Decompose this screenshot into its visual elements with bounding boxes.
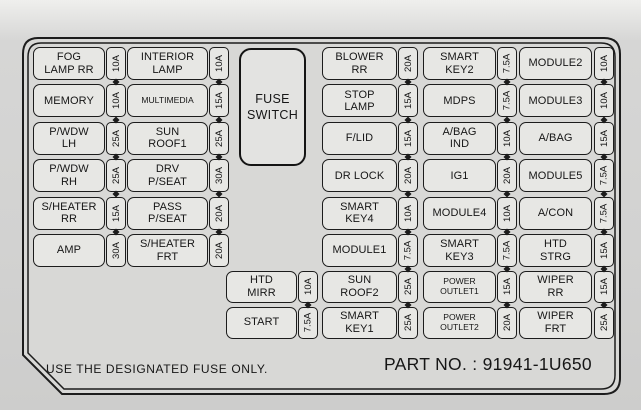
fuse-amp-sun-roof1: 25A [209,122,229,155]
amp-rating: 25A [403,278,414,295]
amp-rating: 15A [599,278,610,295]
amp-rating: 10A [111,55,122,72]
fuse-label: S/HEATER RR [42,201,97,226]
amp-rating: 25A [599,314,610,331]
fuse-amp-smart-key1: 25A [398,307,418,339]
fuse-amp-module2: 10A [594,47,614,80]
amp-rating: 7.5A [599,203,610,223]
fuse-dr-lock: DR LOCK [322,159,397,192]
fuse-module4: MODULE4 [423,197,496,230]
fuse-amp-drv-p-seat: 30A [209,159,229,192]
fuse-s-heater-frt: S/HEATER FRT [127,234,208,267]
fuse-label: SUN ROOF2 [340,274,378,299]
fuse-amp-memory: 10A [106,84,126,117]
fuse-label: STOP LAMP [344,89,374,114]
fuse-amp-power-outlet1: 15A [497,271,517,303]
fuse-label: DRV P/SEAT [148,163,187,188]
fuse-f-lid: F/LID [322,122,397,155]
fuse-label: PASS P/SEAT [148,201,187,226]
amp-rating: 10A [403,205,414,222]
part-number: PART NO. : 91941-1U650 [384,354,592,375]
fuse-amp-start: 7.5A [298,307,318,339]
fuse-label: MODULE5 [529,170,583,182]
fuse-label: POWER OUTLET2 [440,313,479,332]
fuse-multimedia: MULTIMEDIA [127,84,208,117]
amp-rating: 7.5A [502,54,513,74]
fuse-sun-roof2: SUN ROOF2 [322,271,397,303]
fuse-label: HTD STRG [540,238,571,263]
fuse-module5: MODULE5 [519,159,592,192]
amp-rating: 20A [403,55,414,72]
fuse-label: P/WDW LH [49,126,89,151]
fuse-label: BLOWER RR [335,51,383,76]
fuse-p-wdw-rh: P/WDW RH [33,159,105,192]
fuse-module3: MODULE3 [519,84,592,117]
fuse-fog-lamp-rr: FOG LAMP RR [33,47,105,80]
fuse-label: MEMORY [44,95,94,107]
fuse-mdps: MDPS [423,84,496,117]
fuse-label: F/LID [346,132,373,144]
fuse-amp-interior-lamp: 10A [209,47,229,80]
fuse-label: S/HEATER FRT [140,238,195,263]
fuse-amp-smart-key4: 10A [398,197,418,230]
fuse-sun-roof1: SUN ROOF1 [127,122,208,155]
fuse-label: WIPER FRT [537,310,574,335]
amp-rating: 7.5A [599,166,610,186]
fuse-amp-amp: 30A [106,234,126,267]
fuse-label: WIPER RR [537,274,574,299]
fuse-smart-key4: SMART KEY4 [322,197,397,230]
fuse-amp-smart-key2: 7.5A [497,47,517,80]
fuse-label: MODULE3 [529,95,583,107]
amp-rating: 15A [111,205,122,222]
fuse-amp-module4: 10A [497,197,517,230]
fuse-smart-key1: SMART KEY1 [322,307,397,339]
fuse-smart-key2: SMART KEY2 [423,47,496,80]
fuse-label: MODULE4 [433,207,487,219]
fuse-amp-f-lid: 15A [398,122,418,155]
amp-rating: 7.5A [502,91,513,111]
fuse-interior-lamp: INTERIOR LAMP [127,47,208,80]
fuse-label: SMART KEY1 [340,310,379,335]
fuse-amp-mdps: 7.5A [497,84,517,117]
fuse-box-diagram: FOG LAMP RR10AMEMORY10AP/WDW LH25AP/WDW … [0,0,641,410]
fuse-memory: MEMORY [33,84,105,117]
fuse-start: START [226,307,297,339]
fuse-amp-a-bag: 15A [594,122,614,155]
amp-rating: 20A [214,205,225,222]
fuse-amp-ig1: 20A [497,159,517,192]
fuse-stop-lamp: STOP LAMP [322,84,397,117]
fuse-htd-mirr: HTD MIRR [226,271,297,303]
fuse-amp-multimedia: 15A [209,84,229,117]
fuse-label: A/BAG [538,132,572,144]
fuse-amp-sun-roof2: 25A [398,271,418,303]
fuse-amp-dr-lock: 20A [398,159,418,192]
amp-rating: 15A [502,278,513,295]
fuse-smart-key3: SMART KEY3 [423,234,496,267]
fuse-a-bag: A/BAG [519,122,592,155]
fuse-switch-label: FUSE SWITCH [247,91,298,124]
fuse-amp-pass-p-seat: 20A [209,197,229,230]
fuse-power-outlet2: POWER OUTLET2 [423,307,496,339]
amp-rating: 10A [214,55,225,72]
fuse-amp-p-wdw-lh: 25A [106,122,126,155]
amp-rating: 15A [599,130,610,147]
amp-rating: 15A [403,92,414,109]
fuse-amp-s-heater-rr: 15A [106,197,126,230]
fuse-label: MODULE1 [333,244,387,256]
fuse-label: FOG LAMP RR [44,51,93,76]
fuse-htd-strg: HTD STRG [519,234,592,267]
fuse-label: SUN ROOF1 [148,126,186,151]
fuse-label: SMART KEY3 [440,238,479,263]
fuse-a-bag-ind: A/BAG IND [423,122,496,155]
fuse-amp-blower-rr: 20A [398,47,418,80]
fuse-amp: AMP [33,234,105,267]
fuse-label: HTD MIRR [247,274,276,299]
fuse-amp-fog-lamp-rr: 10A [106,47,126,80]
amp-rating: 10A [502,205,513,222]
amp-rating: 20A [502,314,513,331]
amp-rating: 30A [111,242,122,259]
fuse-label: MULTIMEDIA [141,96,193,106]
amp-rating: 10A [502,130,513,147]
amp-rating: 10A [599,92,610,109]
fuse-module2: MODULE2 [519,47,592,80]
fuse-amp-stop-lamp: 15A [398,84,418,117]
fuse-label: P/WDW RH [49,163,89,188]
fuse-amp-s-heater-frt: 20A [209,234,229,267]
fuse-amp-smart-key3: 7.5A [497,234,517,267]
fuse-wiper-rr: WIPER RR [519,271,592,303]
fuse-blower-rr: BLOWER RR [322,47,397,80]
footer-note: USE THE DESIGNATED FUSE ONLY. [46,362,268,376]
amp-rating: 10A [303,278,314,295]
fuse-pass-p-seat: PASS P/SEAT [127,197,208,230]
fuse-amp-p-wdw-rh: 25A [106,159,126,192]
fuse-a-con: A/CON [519,197,592,230]
fuse-label: AMP [57,244,81,256]
fuse-switch-box: FUSE SWITCH [239,48,306,166]
fuse-label: INTERIOR LAMP [141,51,194,76]
fuse-amp-a-con: 7.5A [594,197,614,230]
fuse-label: START [244,316,280,328]
fuse-p-wdw-lh: P/WDW LH [33,122,105,155]
amp-rating: 10A [111,92,122,109]
fuse-amp-module5: 7.5A [594,159,614,192]
amp-rating: 7.5A [403,241,414,261]
amp-rating: 10A [599,55,610,72]
fuse-label: MDPS [443,95,475,107]
amp-rating: 25A [214,130,225,147]
amp-rating: 20A [214,242,225,259]
amp-rating: 7.5A [303,313,314,333]
amp-rating: 30A [214,167,225,184]
amp-rating: 25A [111,130,122,147]
fuse-amp-a-bag-ind: 10A [497,122,517,155]
fuse-amp-htd-strg: 15A [594,234,614,267]
amp-rating: 20A [403,167,414,184]
fuse-label: MODULE2 [529,57,583,69]
fuse-amp-module1: 7.5A [398,234,418,267]
fuse-s-heater-rr: S/HEATER RR [33,197,105,230]
amp-rating: 20A [502,167,513,184]
fuse-amp-wiper-frt: 25A [594,307,614,339]
amp-rating: 15A [403,130,414,147]
amp-rating: 7.5A [502,241,513,261]
fuse-amp-module3: 10A [594,84,614,117]
fuse-label: SMART KEY4 [340,201,379,226]
fuse-amp-power-outlet2: 20A [497,307,517,339]
fuse-label: SMART KEY2 [440,51,479,76]
fuse-amp-wiper-rr: 15A [594,271,614,303]
fuse-ig1: IG1 [423,159,496,192]
amp-rating: 25A [111,167,122,184]
fuse-label: A/CON [538,207,573,219]
fuse-amp-htd-mirr: 10A [298,271,318,303]
amp-rating: 15A [214,92,225,109]
fuse-drv-p-seat: DRV P/SEAT [127,159,208,192]
fuse-power-outlet1: POWER OUTLET1 [423,271,496,303]
amp-rating: 25A [403,314,414,331]
fuse-label: A/BAG IND [442,126,476,151]
fuse-label: POWER OUTLET1 [440,277,479,296]
fuse-label: DR LOCK [335,170,385,182]
fuse-wiper-frt: WIPER FRT [519,307,592,339]
amp-rating: 15A [599,242,610,259]
fuse-label: IG1 [450,170,468,182]
fuse-module1: MODULE1 [322,234,397,267]
